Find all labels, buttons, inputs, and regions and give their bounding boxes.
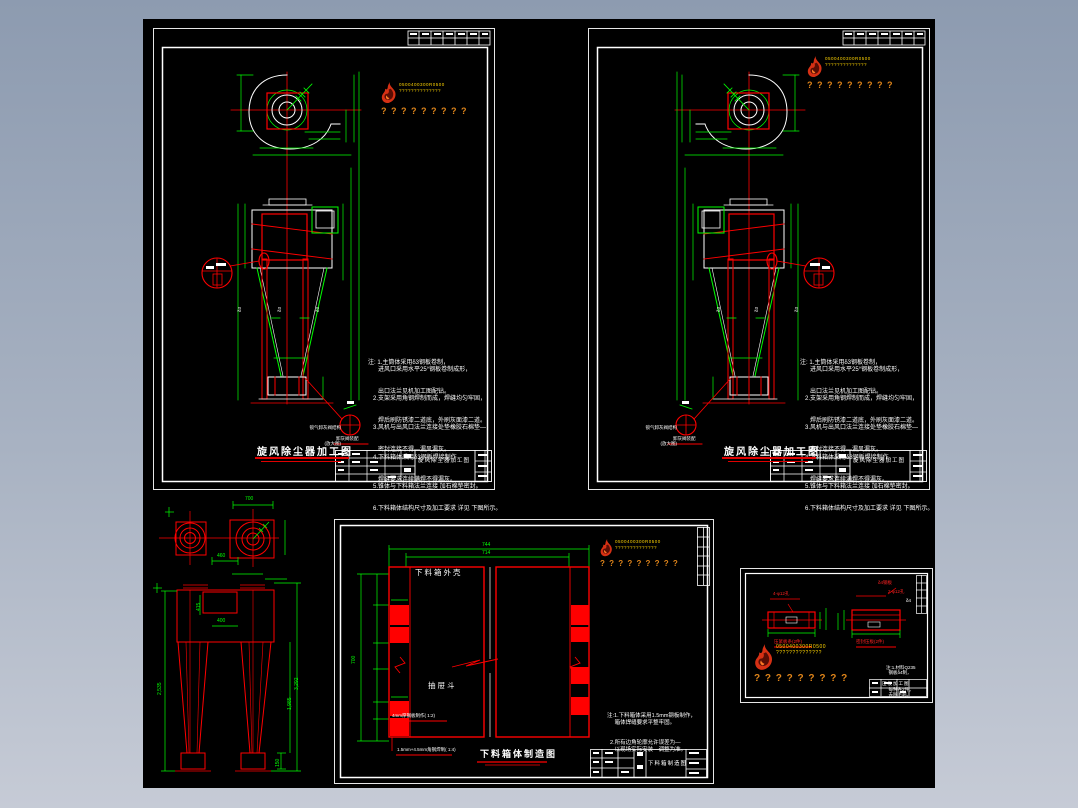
detail-caption: 卸灰阀装配 <box>336 436 359 441</box>
sheet-cyclone-left: 0500400300R0500 ?????????????? ? ? ? ? ?… <box>153 28 495 490</box>
watermark-row1: 0500400300R0500 <box>615 539 661 545</box>
watermark-row3: ? ? ? ? ? ? ? ? ? <box>600 559 679 568</box>
watermark-row1: 0500400300R0500 <box>399 82 445 88</box>
thickness-note: δ4 <box>906 598 911 603</box>
watermark-row3: ? ? ? ? ? ? ? ? ? <box>381 106 467 116</box>
drawing-title: 旋风除尘器加工图 <box>724 443 820 458</box>
title-underline <box>255 457 349 459</box>
thickness-label: δ3 <box>315 307 320 312</box>
twin-cyclone-linework <box>145 495 345 785</box>
watermark: 0500400300R0500 ?????????????? ? ? ? ? ?… <box>807 56 893 90</box>
dim-label: 415 <box>197 603 202 611</box>
thickness-label: δ3 <box>754 307 759 312</box>
watermark-row2: ?????????????? <box>825 62 871 68</box>
watermark-row2: ?????????????? <box>776 650 826 656</box>
drawing-viewport[interactable]: 0500400300R0500 ?????????????? ? ? ? ? ?… <box>143 19 935 788</box>
watermark-row1: 0500400300R0500 <box>825 56 871 62</box>
dim-label: 700 <box>352 656 357 664</box>
watermark: 0500400300R0500 ?????????????? ? ? ? ? ?… <box>600 539 679 568</box>
thickness-label: δ3 <box>237 307 242 312</box>
thickness-label: δ3 <box>277 307 282 312</box>
label-drawer: 抽屉斗 <box>428 680 457 691</box>
watermark-row2: ?????????????? <box>615 545 661 551</box>
sheet-hopper-box: 0500400300R0500 ?????????????? ? ? ? ? ?… <box>334 519 714 784</box>
flame-icon <box>600 539 613 557</box>
part-label-right: 密封压板(2件) <box>856 639 884 644</box>
dim-label: 400 <box>217 619 225 624</box>
title-underline <box>261 461 341 462</box>
watermark: 0500400300R0500 ?????????????? ? ? ? ? ?… <box>754 644 848 684</box>
watermark-row2: ?????????????? <box>399 88 445 94</box>
dim-label: 460 <box>217 554 225 559</box>
dim-label: 700 <box>245 497 253 502</box>
sheet-small-parts: 4-φ12孔 δ4钢板 2-φ12孔 δ4 压紧板条(2件) 密封压板(2件) … <box>740 568 933 703</box>
drawing-title: 旋风除尘器加工图 <box>257 443 353 458</box>
sheet-twin-cyclone: 700 460 400 415 2,535 3,292 1,985 150 <box>145 495 345 785</box>
titleblock-drawing-name: 旋风除尘器加工图 <box>853 456 905 464</box>
flame-icon <box>807 56 823 78</box>
material-note-top: 4mm厚钢板制作( 1:2) <box>392 713 435 718</box>
page-background: { "page": {"bg_top": "#8d9bb0", "bg_bott… <box>0 0 1078 808</box>
notes-block: 注:1.下料箱体采用1.5mm钢板制作， 箱体焊缝要求平整牢固。 2.所有边角轮… <box>607 700 702 767</box>
flame-icon <box>381 82 397 104</box>
dim-label: 3,292 <box>295 677 300 690</box>
dim-label: 150 <box>276 759 281 767</box>
thickness-label: δ3 <box>794 307 799 312</box>
label-shell: 下料箱外壳 <box>415 567 463 578</box>
notes-block: 注: 1.主筒体采用δ3钢板卷制， 进风口采用水平25°钢板卷制成形， 出口法兰… <box>800 345 922 528</box>
dim-label: 714 <box>482 551 490 556</box>
watermark: 0500400300R0500 ?????????????? ? ? ? ? ?… <box>381 82 467 116</box>
dim-label: 744 <box>482 543 490 548</box>
sheet-cyclone-right: 0500400300R0500 ?????????????? ? ? ? ? ?… <box>583 28 930 490</box>
leader-label: 2-φ12孔 <box>888 589 904 594</box>
watermark-row3: ? ? ? ? ? ? ? ? ? <box>807 80 893 90</box>
notes-block: 注: 1.主筒体采用δ3钢板卷制， 进风口采用水平25°钢板卷制成形， 出口法兰… <box>368 345 490 528</box>
leader-label: 4-φ12孔 <box>773 591 789 596</box>
drawing-title: 下料箱体制造图 <box>480 747 557 760</box>
detail-bubble-label: 锁气卸灰阀结构 (放大图) <box>639 414 677 457</box>
thickness-label: δ3 <box>716 307 721 312</box>
material-note-bottom: 1.5mm+4.5mm角钢焊制( 1:4) <box>397 747 456 752</box>
detail-caption: 卸灰阀装配 <box>673 436 696 441</box>
titleblock-drawing-name: 压板加工图 <box>882 681 910 687</box>
dim-label: 1,985 <box>288 697 293 710</box>
title-underline <box>722 457 816 459</box>
dim-label: 2,535 <box>158 682 163 695</box>
titleblock-drawing-name: 旋风除尘器加工图 <box>418 456 470 464</box>
leader-label: δ4钢板 <box>878 580 892 585</box>
flame-icon <box>754 644 774 671</box>
watermark-row3: ? ? ? ? ? ? ? ? ? <box>754 673 848 684</box>
title-underline <box>728 461 808 462</box>
titleblock-drawing-name: 下料箱制造图 <box>648 759 687 767</box>
